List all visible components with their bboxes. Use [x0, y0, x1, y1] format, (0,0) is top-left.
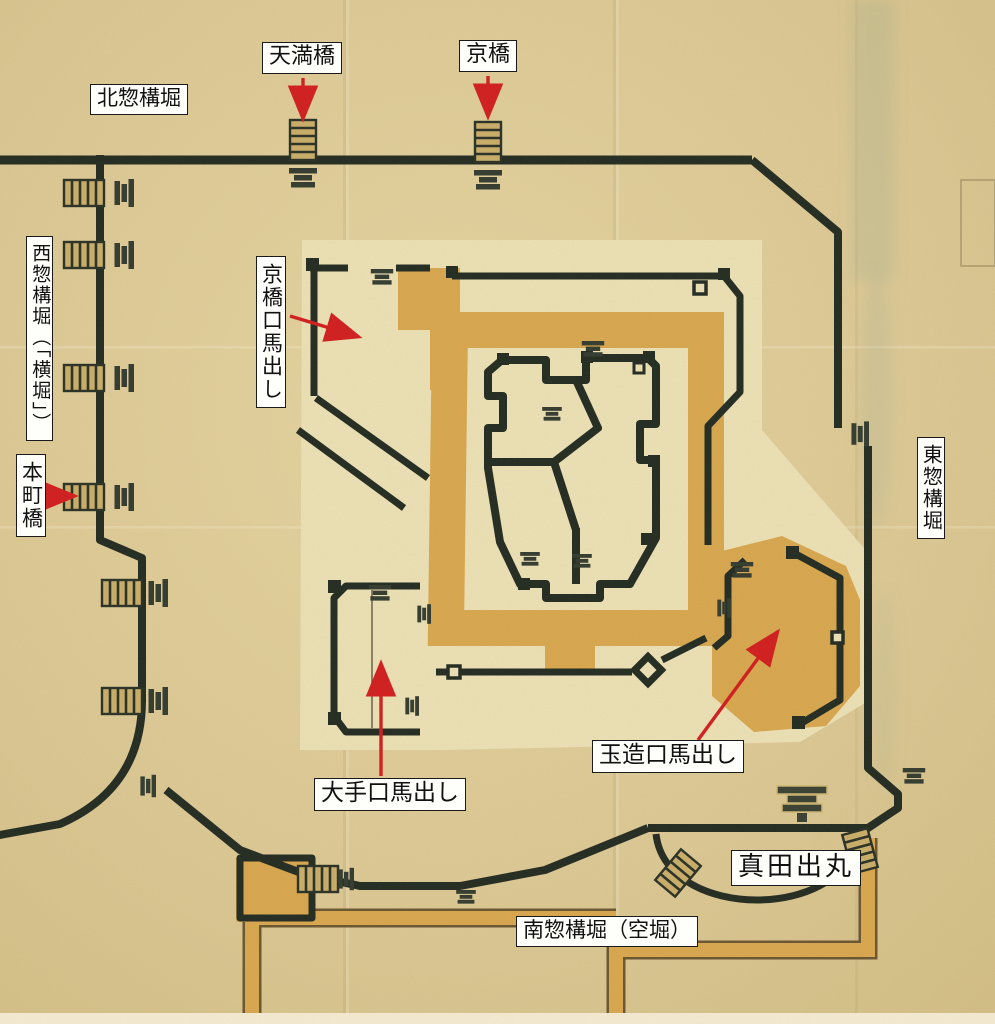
bridge-icon	[290, 120, 316, 160]
label-higashi-sogamae-bori: 東惣構堀	[917, 437, 945, 539]
label-temma-bashi: 天満橋	[262, 42, 342, 74]
label-tamatsukuri-guchi-umadashi: 玉造口馬出し	[592, 740, 744, 773]
bridge-icon	[475, 122, 501, 162]
bridge-icon	[64, 180, 104, 206]
label-kyobashi-guchi-umadashi: 京橋口馬出し	[256, 256, 286, 408]
label-kita-sogamae-bori: 北惣構堀	[90, 84, 188, 115]
label-kyo-bashi: 京橋	[459, 40, 517, 72]
scan-edge	[0, 1013, 995, 1024]
label-minami-sogamae-bori: 南惣構堀（空堀）	[516, 916, 698, 947]
bridge-icon	[102, 688, 142, 714]
label-hommachi-bashi: 本町橋	[16, 454, 46, 537]
castle-moat-map: 北惣構堀 天満橋 京橋 西惣構堀（「横堀」） 本町橋 京橋口馬出し 東惣構堀 大…	[0, 0, 995, 1024]
south-gate-connector	[545, 620, 595, 672]
bridge-icon	[298, 866, 338, 892]
label-nishi-sogamae-bori: 西惣構堀（「横堀」）	[26, 236, 53, 441]
label-ote-guchi-umadashi: 大手口馬出し	[314, 778, 466, 811]
bridge-icon	[102, 580, 142, 606]
bridge-icon	[64, 365, 104, 391]
bridge-icon	[64, 242, 104, 268]
label-sanada-demaru: 真田出丸	[731, 850, 861, 886]
